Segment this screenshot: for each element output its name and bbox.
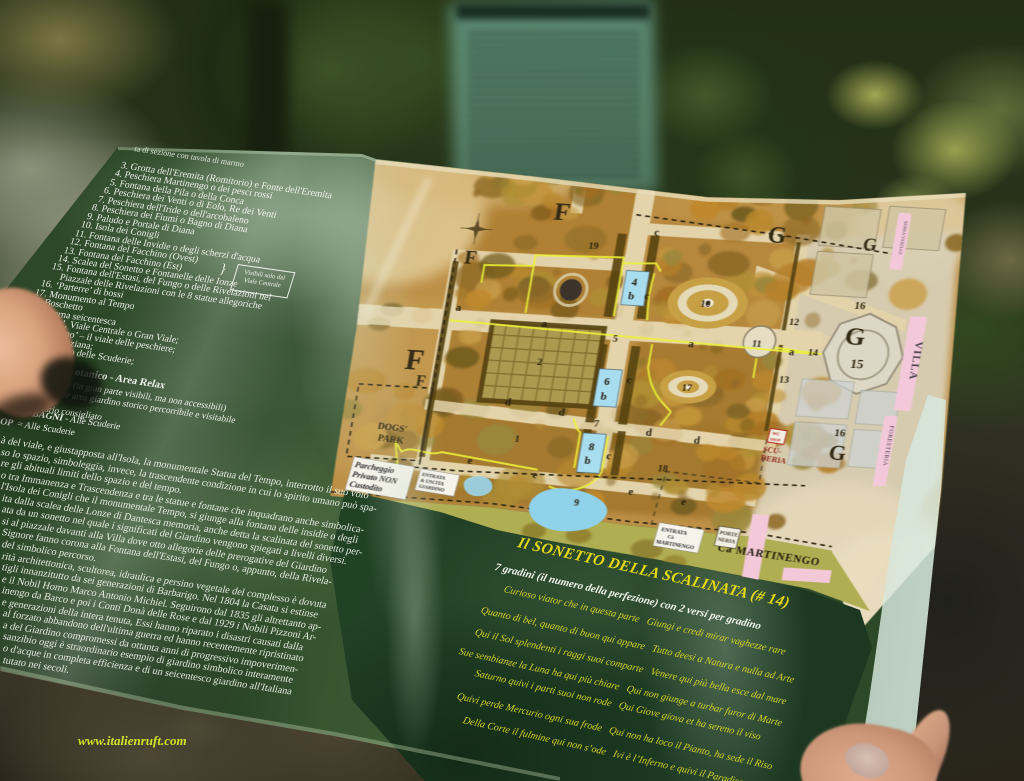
- svg-text:13: 13: [778, 375, 790, 386]
- svg-text:17: 17: [681, 383, 693, 394]
- svg-text:15: 15: [849, 356, 865, 372]
- svg-text:18: 18: [657, 463, 669, 474]
- svg-text:10: 10: [700, 299, 712, 310]
- svg-text:14: 14: [807, 348, 819, 359]
- svg-text:11: 11: [751, 338, 762, 349]
- svg-text:19: 19: [588, 241, 600, 252]
- svg-text:12: 12: [788, 317, 800, 328]
